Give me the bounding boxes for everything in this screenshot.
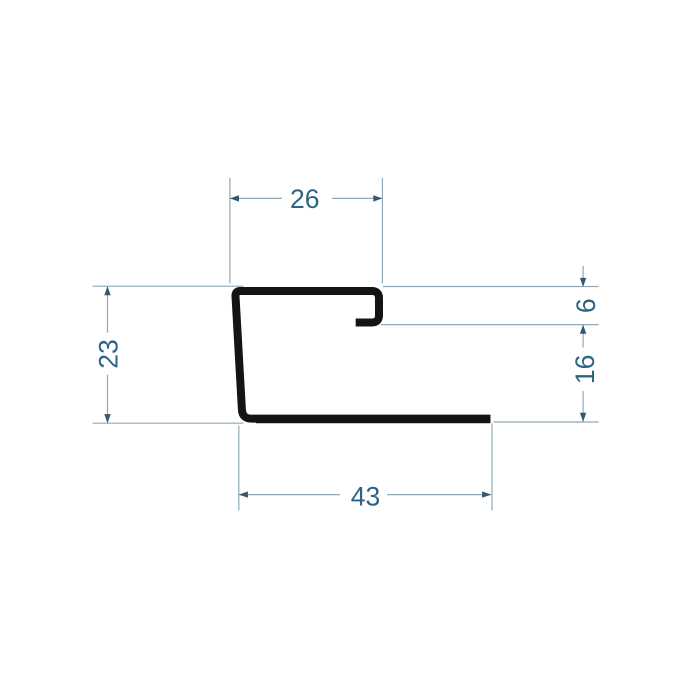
svg-text:43: 43 — [351, 482, 380, 512]
svg-text:16: 16 — [570, 355, 600, 384]
svg-text:23: 23 — [93, 339, 123, 368]
svg-text:26: 26 — [290, 184, 319, 214]
svg-text:6: 6 — [571, 298, 601, 313]
